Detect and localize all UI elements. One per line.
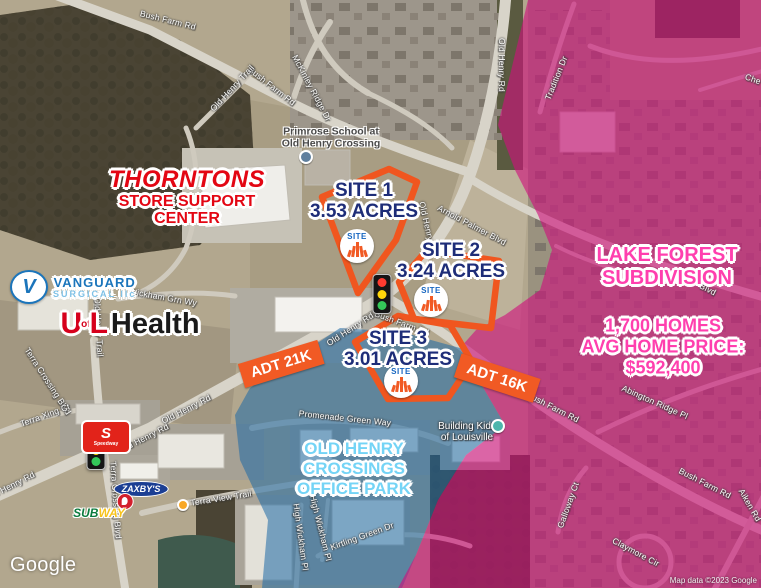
lake-forest-line2: SUBDIVISION [596,267,737,290]
thorntons-logo: THORNTONS STORE SUPPORT CENTER [109,167,265,227]
building-icon [348,242,367,257]
subway-sub: SUB [73,506,98,520]
building-kidz-line1: Building Kidz [438,421,496,432]
site-marker-label: SITE [421,287,441,295]
site1-marker: SITE [340,229,374,263]
lake-forest-price: $592,400 [582,358,745,379]
uofl-health-logo: UofLHealth [60,307,199,341]
map-canvas: Bush Farm RdBush Farm RdOld Henry TrailM… [0,0,761,588]
green-light-icon [378,301,387,310]
speedway-logo: S Speedway [81,420,131,454]
office-park-line2: CROSSINGS [297,459,411,479]
site3-name: SITE 3 [344,328,452,349]
speedway-name: Speedway [94,441,118,447]
site3-acres: 3.01 ACRES [344,349,452,370]
site1-acres: 3.53 ACRES [310,201,418,222]
green-light-icon [92,457,101,466]
building-kidz-label: Building Kidz of Louisville [438,421,496,443]
site1-name: SITE 1 [310,180,418,201]
site1-label: SITE 1 3.53 ACRES [310,180,418,222]
building-kidz-line2: of Louisville [438,432,496,443]
lake-forest-price-label: AVG HOME PRICE: [582,337,745,358]
vanguard-sub: SURGICAL llc [53,289,136,299]
site3-label: SITE 3 3.01 ACRES [344,328,452,370]
site2-label: SITE 2 3.24 ACRES [397,240,505,282]
building-kidz-pin-icon [491,419,505,433]
thorntons-sub1: STORE SUPPORT [109,193,265,210]
yellow-light-icon [378,290,387,299]
vanguard-v-icon: V [10,270,48,304]
building-icon [392,377,411,392]
thorntons-sub2: CENTER [109,210,265,227]
office-park-line3: OFFICE PARK [297,479,411,499]
primrose-school-label: Primrose School at Old Henry Crossing [282,127,381,150]
red-light-icon [378,278,387,287]
site2-name: SITE 2 [397,240,505,261]
office-park-title: OLD HENRY CROSSINGS OFFICE PARK [297,439,411,499]
speedway-s: S [101,427,111,441]
subway-way: WAY [98,506,124,520]
traffic-light-icon [373,274,392,314]
zaxbys-logo: ZAXBY'S [114,481,169,497]
site-marker-label: SITE [347,233,367,241]
lake-forest-title: LAKE FOREST SUBDIVISION [596,244,737,290]
vanguard-logo: V VANGUARD SURGICAL llc [10,270,136,304]
google-logo: Google [10,554,76,577]
primrose-line2: Old Henry Crossing [282,138,381,150]
lake-forest-homes: 1,700 HOMES [582,316,745,337]
primrose-pin-icon [299,150,313,164]
uofl-health: Health [111,308,200,340]
office-park-line1: OLD HENRY [297,439,411,459]
building-icon [422,296,441,311]
map-attribution: Map data ©2023 Google [670,576,757,585]
vanguard-name: VANGUARD [53,276,136,289]
subway-logo: SUBWAY [73,506,125,520]
lake-forest-stats: 1,700 HOMES AVG HOME PRICE: $592,400 [582,316,745,379]
thorntons-title: THORNTONS [109,167,265,193]
site2-marker: SITE [414,283,448,317]
lake-forest-line1: LAKE FOREST [596,244,737,267]
terra-view-poi-icon [177,499,189,511]
primrose-line1: Primrose School at [282,127,381,139]
uofl-l: L [90,307,108,340]
uofl-u: U [60,307,82,340]
site2-acres: 3.24 ACRES [397,261,505,282]
